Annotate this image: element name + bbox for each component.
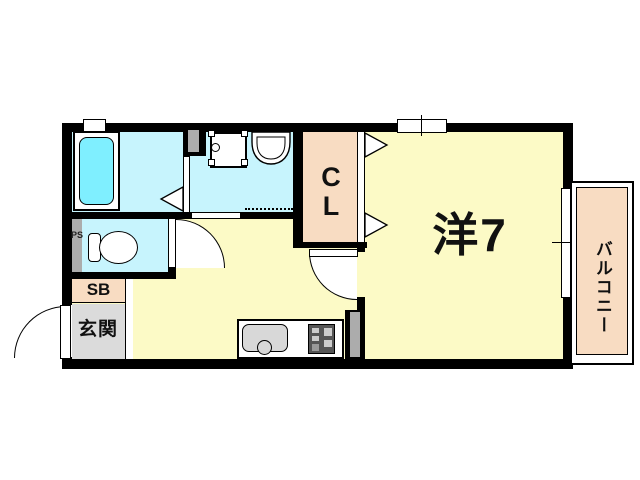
floorplan-canvas: 洋7 CL バルコニー SB 玄関 PS [0,0,640,480]
room-western-label: 洋7 [380,211,560,259]
balcony-label: バルコニー [593,207,611,367]
shoebox-label: SB [72,281,125,299]
closet-label: CL [320,163,342,221]
room-window [397,119,447,133]
bath-window [83,119,106,132]
room-window-mullion [421,115,422,136]
wash-basin-icon [250,130,294,168]
pipe-space-label: PS [71,230,83,241]
entrance-label: 玄関 [70,320,126,340]
